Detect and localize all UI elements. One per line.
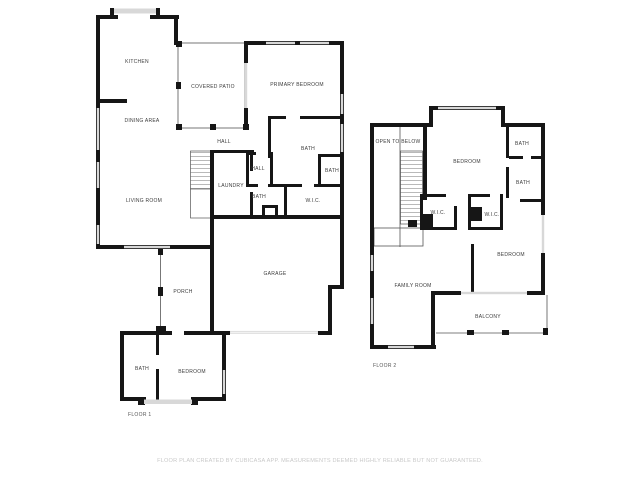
room-label-primary-bedroom: PRIMARY BEDROOM (270, 82, 324, 88)
room-label-balcony: BALCONY (475, 314, 501, 320)
floor-plan-drawing (0, 0, 640, 480)
floor1-stairs (191, 151, 212, 218)
floor1-windows (97, 9, 343, 405)
room-label-bath-small: BATH (325, 168, 339, 174)
floor2-tag: FLOOR 2 (373, 363, 397, 369)
floor1-walls (96, 8, 344, 405)
room-label-bath-hall: BATH (252, 194, 266, 200)
room-label-bedroom-top: BEDROOM (453, 159, 481, 165)
room-label-bedroom-guest: BEDROOM (178, 369, 206, 375)
room-label-wic: W.I.C. (305, 198, 320, 204)
floor1-garage-door (230, 331, 318, 333)
room-label-wic-right: W.I.C. (484, 212, 499, 218)
room-label-hall-upper: HALL (217, 139, 231, 145)
room-label-bath-primary: BATH (301, 146, 315, 152)
room-label-dining-area: DINING AREA (125, 118, 160, 124)
room-label-bath-mid: BATH (516, 180, 530, 186)
room-label-hall-inner: HALL (251, 166, 265, 172)
room-label-family-room: FAMILY ROOM (394, 283, 431, 289)
room-label-covered-patio: COVERED PATIO (191, 84, 235, 90)
room-label-bath-guest: BATH (135, 366, 149, 372)
room-label-open-to-below: OPEN TO BELOW (375, 139, 420, 145)
room-label-laundry: LAUNDRY (218, 183, 244, 189)
disclaimer-text: FLOOR PLAN CREATED BY CUBICASA APP. MEAS… (157, 458, 483, 464)
room-label-living-room: LIVING ROOM (126, 198, 162, 204)
room-label-kitchen: KITCHEN (125, 59, 149, 65)
floor1-tag: FLOOR 1 (128, 412, 152, 418)
room-label-bedroom-right: BEDROOM (497, 252, 525, 258)
room-label-wic-left: W.I.C. (430, 210, 445, 216)
room-label-garage: GARAGE (264, 271, 287, 277)
room-label-bath-top: BATH (515, 141, 529, 147)
floor2-stairs (401, 151, 423, 224)
floor-plan-canvas: KITCHEN DINING AREA LIVING ROOM COVERED … (0, 0, 640, 480)
room-label-porch: PORCH (173, 289, 192, 295)
